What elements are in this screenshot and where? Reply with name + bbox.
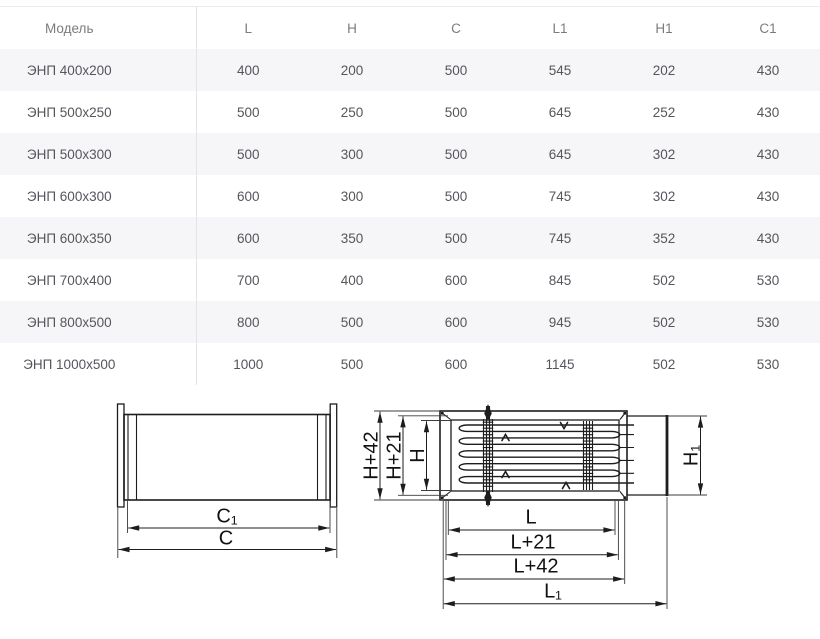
dimensions-section: Модель L H C L1 H1 C1 ЭНП 400х2004002005… [0, 6, 820, 385]
side-view-drawing: C₁ C [118, 404, 337, 558]
value-cell: 252 [612, 91, 716, 133]
table-row: ЭНП 600х350600350500745352430 [0, 217, 820, 259]
model-cell: ЭНП 600х300 [0, 175, 196, 217]
dim-label-l21: L+21 [510, 532, 555, 554]
table-row: ЭНП 800х500800500600945502530 [0, 301, 820, 343]
value-cell: 300 [300, 133, 404, 175]
table-row: ЭНП 500х300500300500645302430 [0, 133, 820, 175]
table-row: ЭНП 1000х50010005006001145502530 [0, 343, 820, 385]
value-cell: 600 [404, 343, 508, 385]
length-dimensions: L L+21 L+42 L₁ [443, 497, 667, 609]
value-cell: 302 [612, 133, 716, 175]
value-cell: 502 [612, 343, 716, 385]
column-header-model: Модель [0, 7, 196, 50]
rod-arrow-bottom [484, 490, 492, 507]
dim-label-h1: H₁ [681, 445, 703, 466]
value-cell: 645 [508, 91, 612, 133]
value-cell: 530 [716, 343, 820, 385]
value-cell: 645 [508, 133, 612, 175]
model-cell: ЭНП 700х400 [0, 259, 196, 301]
value-cell: 502 [612, 259, 716, 301]
dimensions-table: Модель L H C L1 H1 C1 ЭНП 400х2004002005… [0, 6, 820, 385]
dim-label-l: L [525, 507, 536, 529]
column-header-c: C [404, 7, 508, 50]
coil-clip-marks [502, 423, 570, 489]
value-cell: 500 [404, 133, 508, 175]
value-cell: 700 [196, 259, 300, 301]
value-cell: 845 [508, 259, 612, 301]
value-cell: 430 [716, 91, 820, 133]
dim-label-l42: L+42 [513, 556, 558, 578]
heating-coils [459, 423, 634, 489]
column-header-c1: C1 [716, 7, 820, 50]
side-view-dimensions: C₁ C [118, 501, 337, 558]
rod-arrow-top [484, 404, 492, 421]
value-cell: 500 [404, 175, 508, 217]
value-cell: 530 [716, 259, 820, 301]
value-cell: 600 [404, 301, 508, 343]
value-cell: 500 [404, 217, 508, 259]
model-cell: ЭНП 800х500 [0, 301, 196, 343]
value-cell: 745 [508, 175, 612, 217]
dim-label-h: H [407, 448, 429, 462]
table-row: ЭНП 600х300600300500745302430 [0, 175, 820, 217]
value-cell: 430 [716, 175, 820, 217]
value-cell: 400 [300, 259, 404, 301]
value-cell: 400 [196, 49, 300, 91]
value-cell: 352 [612, 217, 716, 259]
table-row: ЭНП 400х200400200500545202430 [0, 49, 820, 91]
value-cell: 502 [612, 301, 716, 343]
value-cell: 945 [508, 301, 612, 343]
dim-label-c1: C₁ [216, 506, 237, 528]
dim-label-h21: H+21 [384, 431, 406, 479]
value-cell: 202 [612, 49, 716, 91]
table-header-row: Модель L H C L1 H1 C1 [0, 7, 820, 50]
column-header-h1: H1 [612, 7, 716, 50]
model-cell: ЭНП 1000х500 [0, 343, 196, 385]
value-cell: 500 [300, 301, 404, 343]
value-cell: 500 [404, 49, 508, 91]
value-cell: 200 [300, 49, 404, 91]
column-header-h: H [300, 7, 404, 50]
value-cell: 1000 [196, 343, 300, 385]
front-view-drawing: H+42 H+21 H H₁ L L+21 L+42 L₁ [361, 404, 708, 609]
value-cell: 600 [196, 175, 300, 217]
column-header-l: L [196, 7, 300, 50]
value-cell: 600 [404, 259, 508, 301]
dim-label-h42: H+42 [361, 431, 383, 479]
value-cell: 430 [716, 217, 820, 259]
model-cell: ЭНП 500х250 [0, 91, 196, 133]
value-cell: 300 [300, 175, 404, 217]
value-cell: 545 [508, 49, 612, 91]
duct-body [118, 404, 337, 507]
value-cell: 800 [196, 301, 300, 343]
terminal-box [627, 415, 668, 496]
value-cell: 600 [196, 217, 300, 259]
value-cell: 430 [716, 133, 820, 175]
table-header: Модель L H C L1 H1 C1 [0, 7, 820, 50]
value-cell: 250 [300, 91, 404, 133]
value-cell: 500 [300, 343, 404, 385]
value-cell: 500 [196, 133, 300, 175]
table-row: ЭНП 500х250500250500645252430 [0, 91, 820, 133]
table-row: ЭНП 700х400700400600845502530 [0, 259, 820, 301]
model-cell: ЭНП 600х350 [0, 217, 196, 259]
dim-label-l1: L₁ [544, 581, 562, 603]
model-cell: ЭНП 500х300 [0, 133, 196, 175]
value-cell: 530 [716, 301, 820, 343]
dimension-drawings: C₁ C [0, 385, 820, 639]
value-cell: 1145 [508, 343, 612, 385]
column-header-l1: L1 [508, 7, 612, 50]
dim-label-c: C [219, 528, 233, 550]
value-cell: 500 [196, 91, 300, 133]
value-cell: 302 [612, 175, 716, 217]
value-cell: 500 [404, 91, 508, 133]
model-cell: ЭНП 400х200 [0, 49, 196, 91]
value-cell: 745 [508, 217, 612, 259]
value-cell: 430 [716, 49, 820, 91]
value-cell: 350 [300, 217, 404, 259]
table-body: ЭНП 400х200400200500545202430ЭНП 500х250… [0, 49, 820, 385]
